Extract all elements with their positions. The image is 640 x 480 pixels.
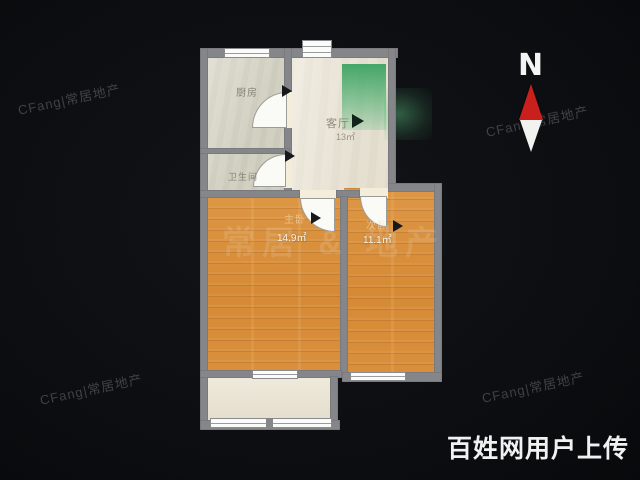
compass-needle-red-icon: [519, 84, 543, 120]
kitchen-arrow-marker: [282, 85, 292, 97]
living-room-label: 客厅: [326, 115, 350, 131]
compass-north-label: N: [518, 48, 543, 83]
bathroom-arrow-marker: [285, 150, 295, 162]
balcony-window-divider: [266, 418, 273, 428]
kitchen-window: [224, 48, 270, 58]
compass: N: [503, 48, 559, 158]
wall-kitchen-bath: [200, 148, 290, 154]
bathroom-label: 卫生间: [228, 170, 258, 183]
wall-balcony-right: [330, 376, 338, 422]
floorplan-image: { "rooms": { "kitchen": { "label": "厨房" …: [0, 0, 640, 480]
living-room-area: 13㎡: [336, 130, 355, 143]
balcony-floor: [204, 374, 336, 424]
living-room-arrow-marker: [352, 114, 364, 128]
wall-right: [434, 183, 442, 382]
bedroom-main-door-opening: [300, 190, 336, 198]
kitchen-label: 厨房: [236, 84, 258, 99]
wall-living-right: [388, 48, 396, 188]
bedroom-balcony-window: [252, 370, 298, 379]
brand-watermark-large: 常居 & 地产: [222, 216, 445, 264]
uploader-caption: 百姓网用户上传: [447, 429, 629, 465]
wall-bath-bedroom: [200, 190, 300, 198]
compass-needle-white-icon: [520, 120, 542, 152]
living-room-bay-window: [302, 40, 332, 58]
bedroom-second-window: [350, 372, 406, 381]
